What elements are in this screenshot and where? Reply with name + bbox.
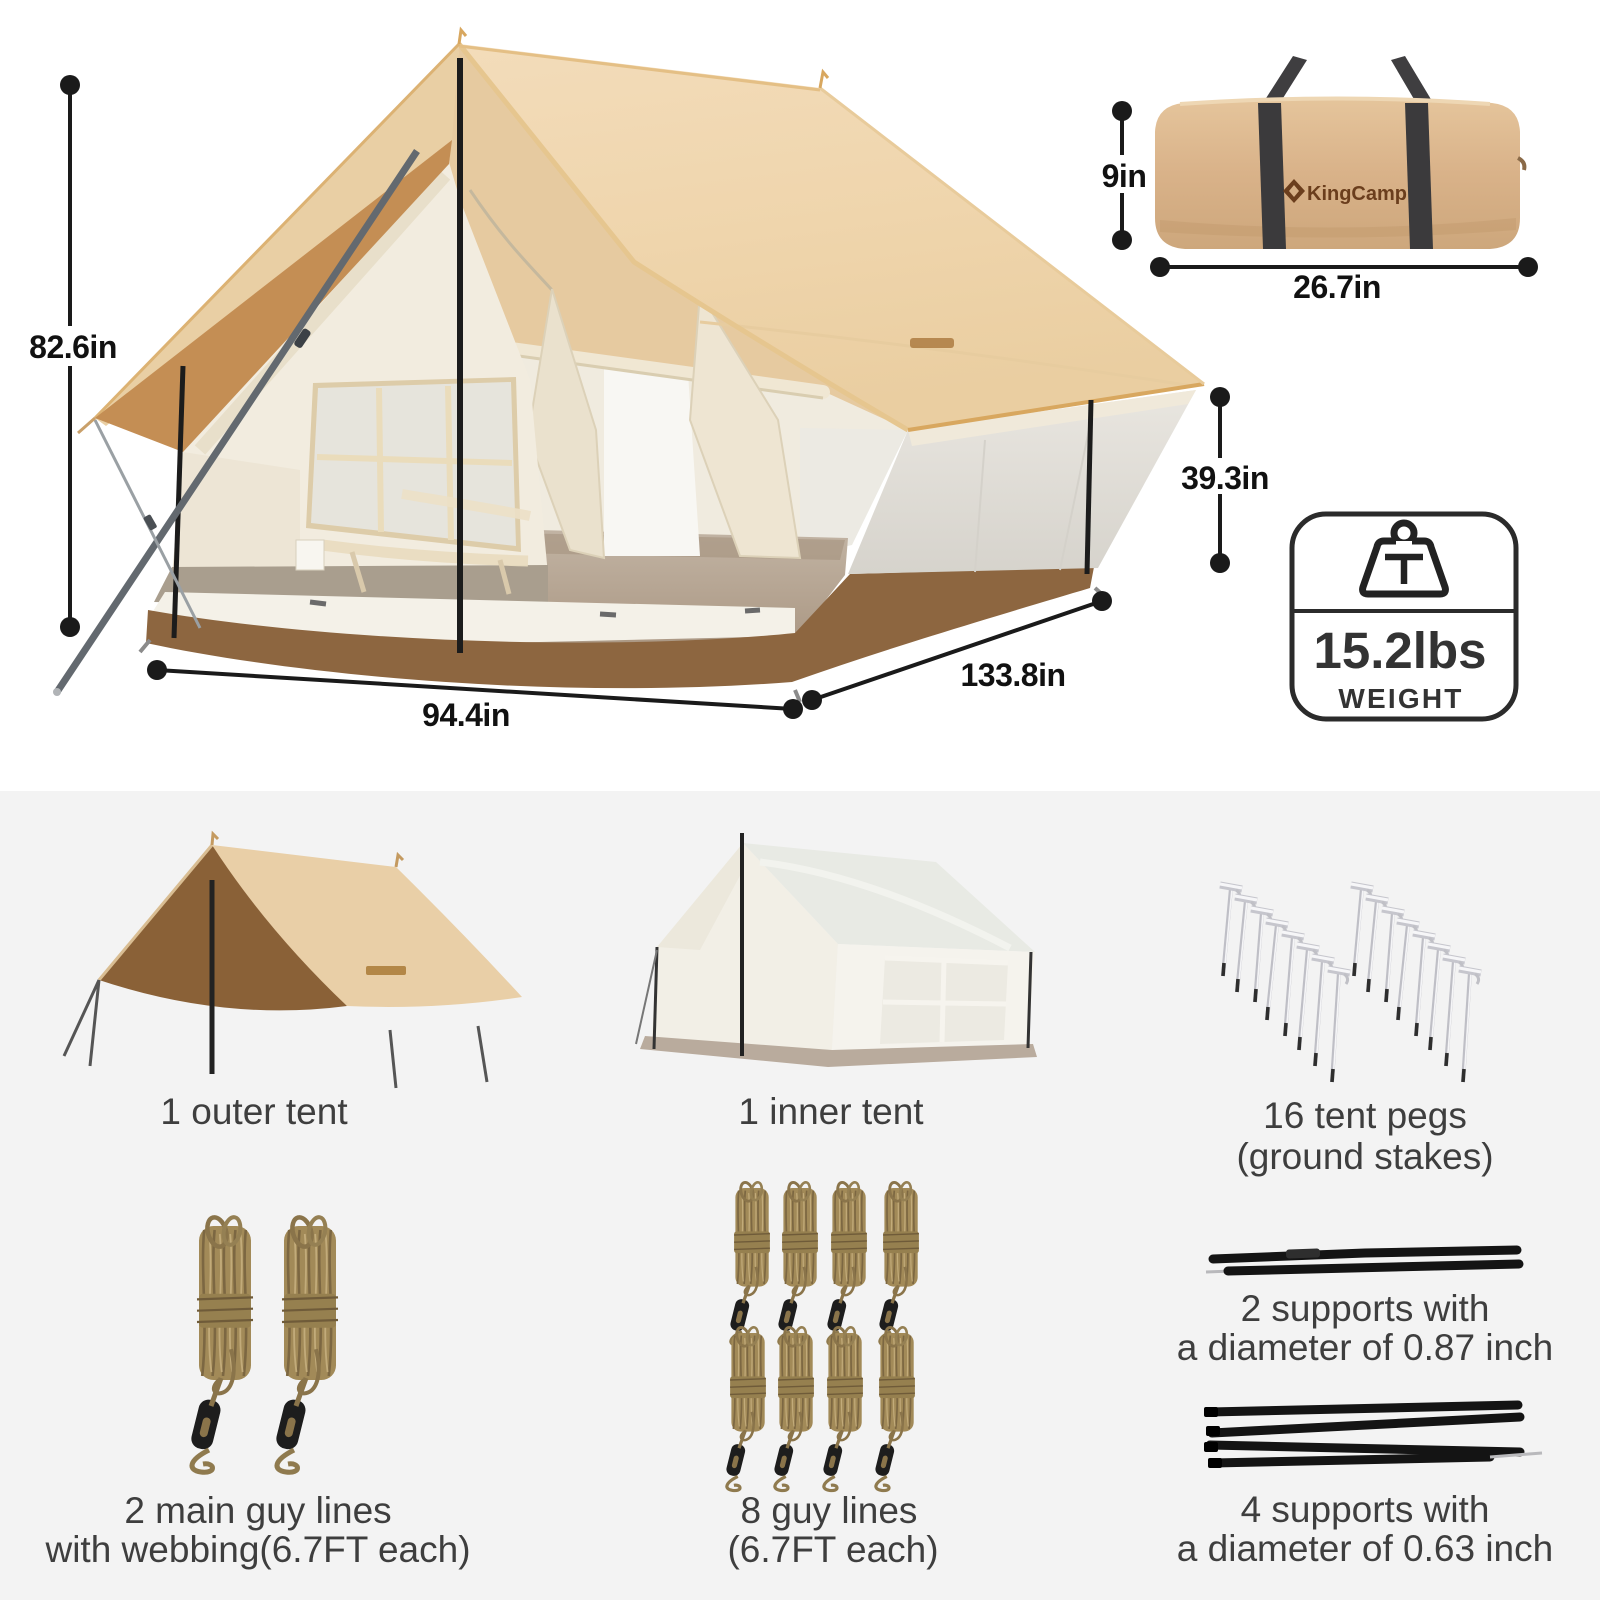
svg-text:(ground stakes): (ground stakes) [1236, 1136, 1493, 1177]
svg-text:WEIGHT: WEIGHT [1338, 683, 1463, 714]
svg-text:(6.7FT each): (6.7FT each) [727, 1529, 938, 1570]
svg-text:a diameter of 0.63 inch: a diameter of 0.63 inch [1177, 1528, 1553, 1569]
svg-text:1 outer tent: 1 outer tent [160, 1091, 348, 1132]
svg-text:94.4in: 94.4in [422, 697, 510, 733]
svg-text:133.8in: 133.8in [960, 657, 1065, 693]
svg-text:15.2lbs: 15.2lbs [1314, 622, 1487, 679]
svg-text:26.7in: 26.7in [1293, 269, 1381, 305]
svg-text:2 supports with: 2 supports with [1241, 1288, 1490, 1329]
svg-text:82.6in: 82.6in [29, 329, 117, 365]
svg-text:9in: 9in [1102, 158, 1147, 194]
svg-text:16 tent pegs: 16 tent pegs [1263, 1095, 1467, 1136]
svg-text:4 supports with: 4 supports with [1241, 1489, 1490, 1530]
svg-text:KingCamp: KingCamp [1307, 183, 1407, 205]
svg-text:1 inner tent: 1 inner tent [738, 1091, 924, 1132]
svg-text:39.3in: 39.3in [1181, 460, 1269, 496]
svg-text:2 main guy lines: 2 main guy lines [124, 1490, 391, 1531]
svg-text:8 guy lines: 8 guy lines [741, 1490, 918, 1531]
svg-text:a diameter of 0.87 inch: a diameter of 0.87 inch [1177, 1327, 1553, 1368]
svg-text:with webbing(6.7FT each): with webbing(6.7FT each) [44, 1529, 470, 1570]
